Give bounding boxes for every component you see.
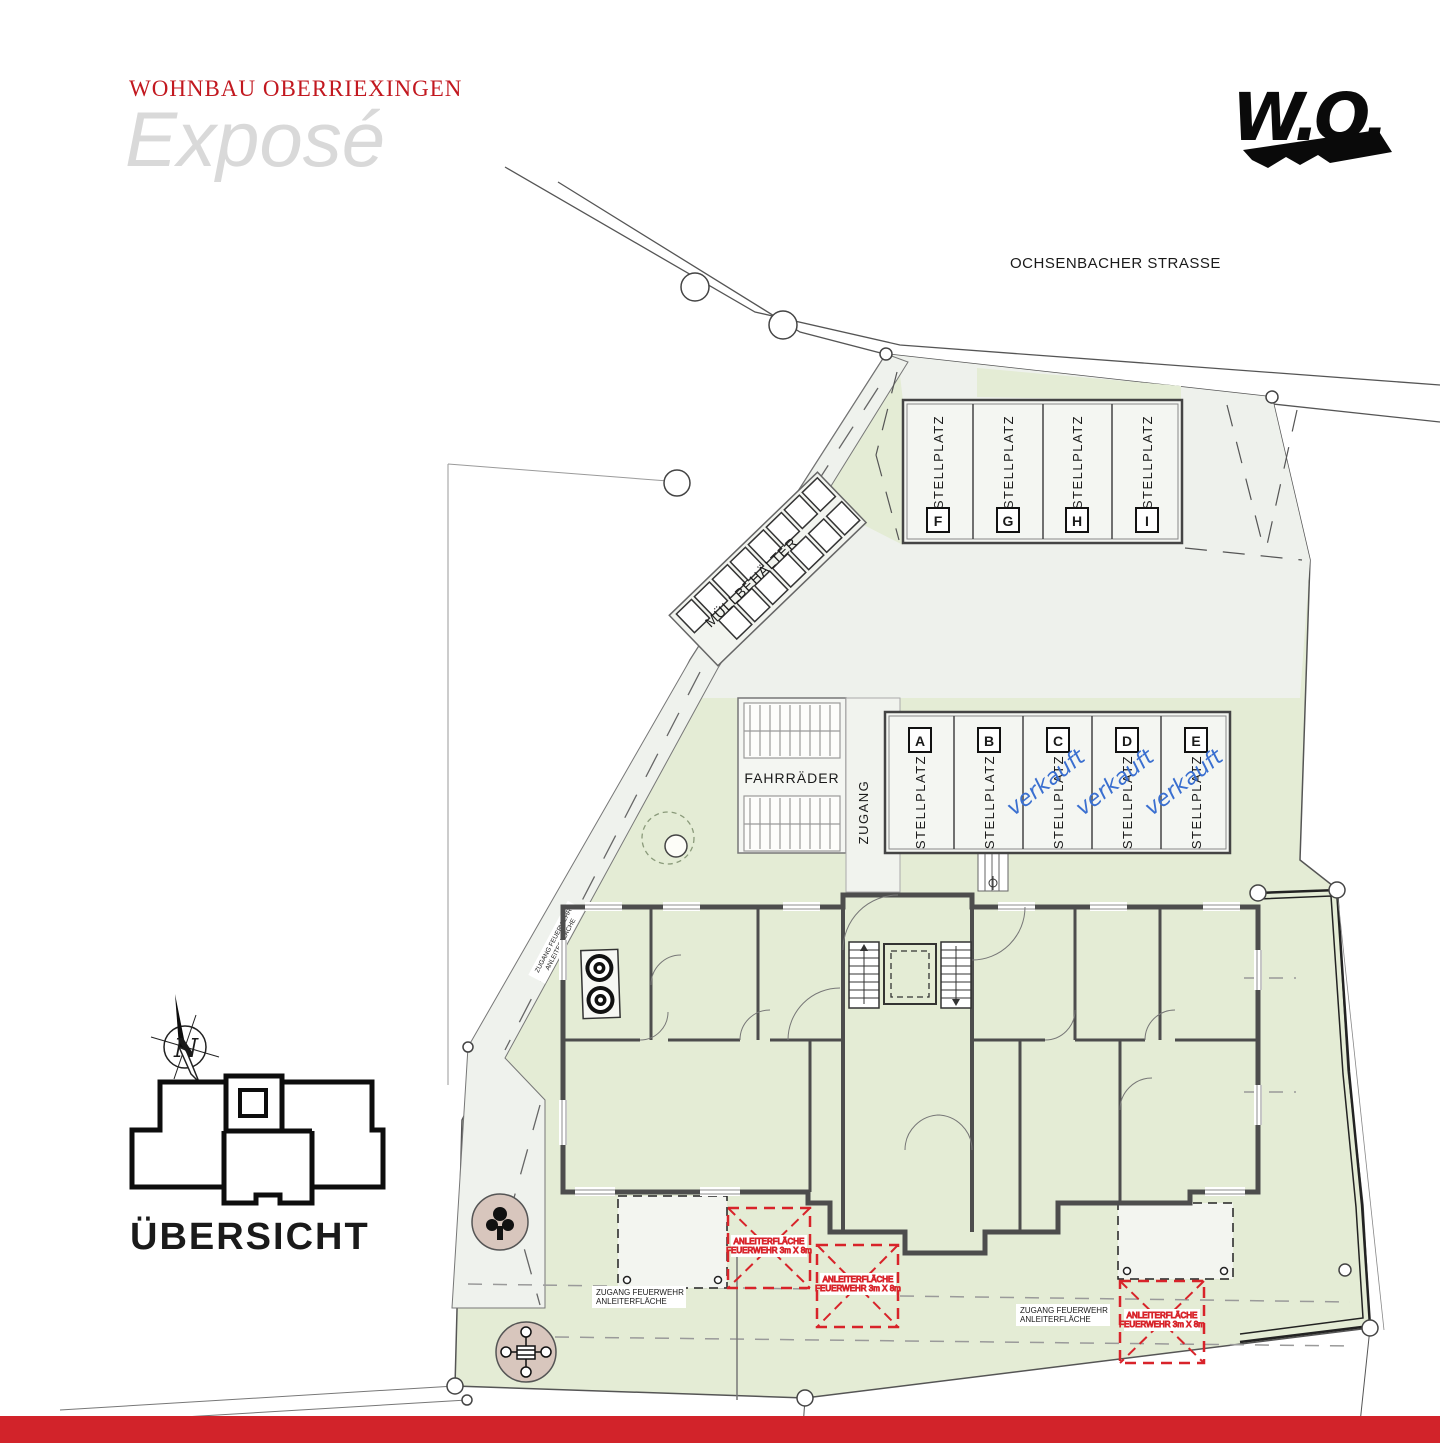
overview-label: ÜBERSICHT [130,1215,370,1258]
parking-block-bottom: A STELLPLATZ B STELLPLATZ C STELLPLATZ v… [885,712,1230,853]
survey-point [664,470,690,496]
parking-block-top: STELLPLATZ F STELLPLATZ G STELLPLATZ H S… [903,400,1182,543]
street-label: OCHSENBACHER STRASSE [1010,255,1221,272]
stall-H: STELLPLATZ H [1066,415,1088,532]
fire-area-label: FEUERWEHR 3m X 8m [726,1246,812,1255]
survey-point [769,311,797,339]
stall-letter: H [1072,513,1082,529]
stall-letter: E [1191,733,1200,749]
play-equipment-icon [496,1322,556,1382]
bikes-label: FAHRRÄDER [744,770,839,786]
stall-type-label: STELLPLATZ [1140,415,1155,509]
fire-access-label: ANLEITERFLÄCHE [596,1297,667,1306]
stall-type-label: STELLPLATZ [1001,415,1016,509]
footer-accent-bar [0,1416,1440,1443]
fire-area-label: FEUERWEHR 3m X 8m [815,1284,901,1293]
lawn-strip-top [977,368,1181,401]
stall-type-label: STELLPLATZ [982,755,997,849]
stall-letter: G [1003,513,1014,529]
tree-trunk-icon [665,835,687,857]
fire-access-label: ZUGANG FEUERWEHR [596,1288,684,1297]
fire-access-label: ZUGANG FEUERWEHR [1020,1306,1108,1315]
skylight-wells [581,949,620,1018]
entry-steps [978,853,1008,891]
stall-A: A STELLPLATZ [909,728,931,849]
fire-access-label: ANLEITERFLÄCHE [1020,1315,1091,1324]
overview-icon [132,1076,383,1203]
north-arrow: N [151,994,219,1082]
terrace [618,1196,727,1288]
access-label: ZUGANG [856,780,871,845]
stall-letter: B [984,733,994,749]
stall-letter: I [1145,513,1149,529]
terrace [1118,1203,1233,1279]
company-logo: W.O. [1232,79,1392,168]
stall-F: STELLPLATZ F [927,415,949,532]
stall-letter: C [1053,733,1063,749]
stall-type-label: STELLPLATZ [1070,415,1085,509]
fire-area-label: ANLEITERFLÄCHE [823,1275,894,1284]
north-label: N [173,1034,199,1064]
tree-icon [472,1194,528,1250]
stall-type-label: STELLPLATZ [913,755,928,849]
fire-area-label: FEUERWEHR 3m X 8m [1119,1320,1205,1329]
survey-point [681,273,709,301]
stall-letter: D [1122,733,1132,749]
stall-letter: F [934,513,943,529]
stall-G: STELLPLATZ G [997,415,1019,532]
bike-parking: FAHRRÄDER [738,698,846,853]
site-plan: W.O. OCHSENBACHER STRASSE ZUGANG FEUERWE… [0,0,1440,1440]
stall-letter: A [915,733,925,749]
stall-B: B STELLPLATZ [978,728,1000,849]
fire-area-label: ANLEITERFLÄCHE [734,1237,805,1246]
stall-I: STELLPLATZ I [1136,415,1158,532]
stall-type-label: STELLPLATZ [931,415,946,509]
fire-area-label: ANLEITERFLÄCHE [1127,1311,1198,1320]
